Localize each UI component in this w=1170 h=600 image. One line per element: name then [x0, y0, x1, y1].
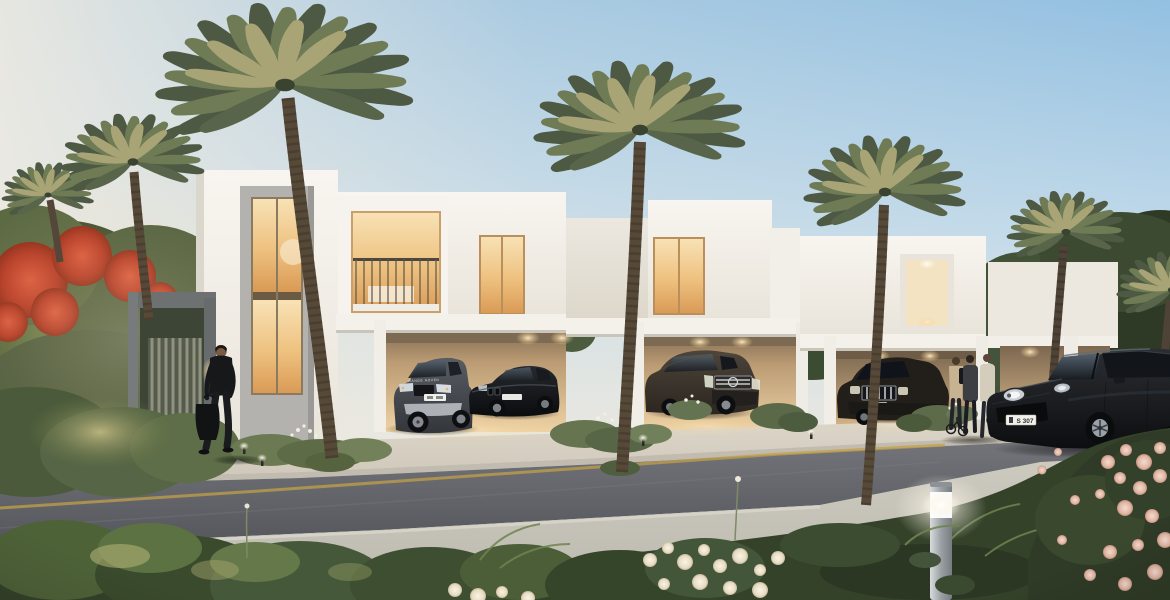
dusk-townhouse-rendering: RANGE ROVER	[0, 0, 1170, 600]
vignette	[0, 0, 1170, 600]
scene-canvas: RANGE ROVER	[0, 0, 1170, 600]
